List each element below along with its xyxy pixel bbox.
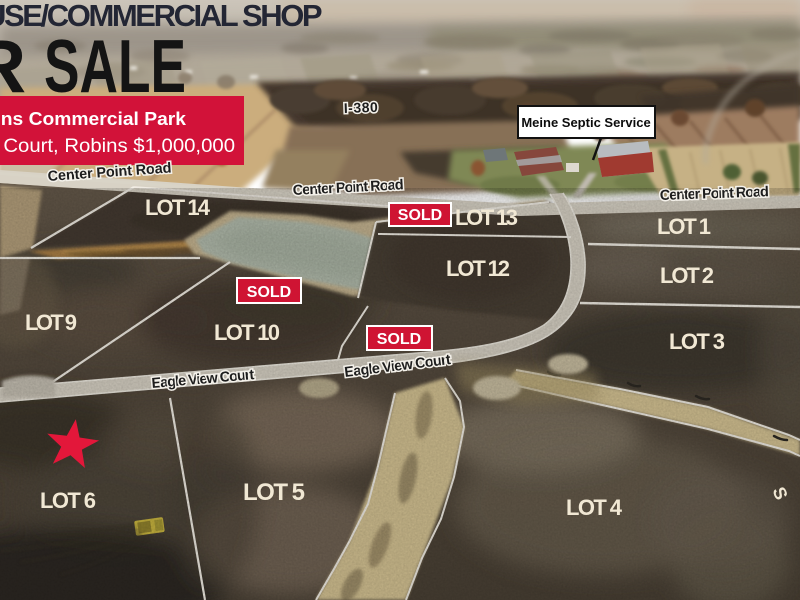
svg-text:Robins Commercial Park: Robins Commercial Park [0,109,187,129]
svg-text:I-380: I-380 [344,99,379,116]
svg-text:LOT 9: LOT 9 [25,310,77,335]
svg-text:View Court, Robins $1,000,000: View Court, Robins $1,000,000 [0,136,235,157]
svg-text:LOT 14: LOT 14 [145,195,211,220]
svg-text:SOLD: SOLD [398,207,442,224]
svg-text:LOT 10: LOT 10 [214,320,280,345]
svg-text:LOT 6: LOT 6 [40,488,96,513]
svg-text:R: R [0,24,26,108]
svg-text:SOLD: SOLD [247,284,291,301]
svg-text:LOT 2: LOT 2 [660,263,714,288]
svg-text:LOT 13: LOT 13 [455,205,518,230]
svg-text:LOT 12: LOT 12 [446,256,510,281]
svg-text:LOT 1: LOT 1 [657,214,711,239]
svg-text:LOT 4: LOT 4 [566,495,623,520]
svg-text:LOT 3: LOT 3 [669,329,725,354]
svg-text:Meine Septic Service: Meine Septic Service [521,115,650,130]
svg-text:LOT 5: LOT 5 [243,479,305,506]
svg-text:SALE: SALE [44,24,186,108]
svg-text:SOLD: SOLD [377,331,421,348]
